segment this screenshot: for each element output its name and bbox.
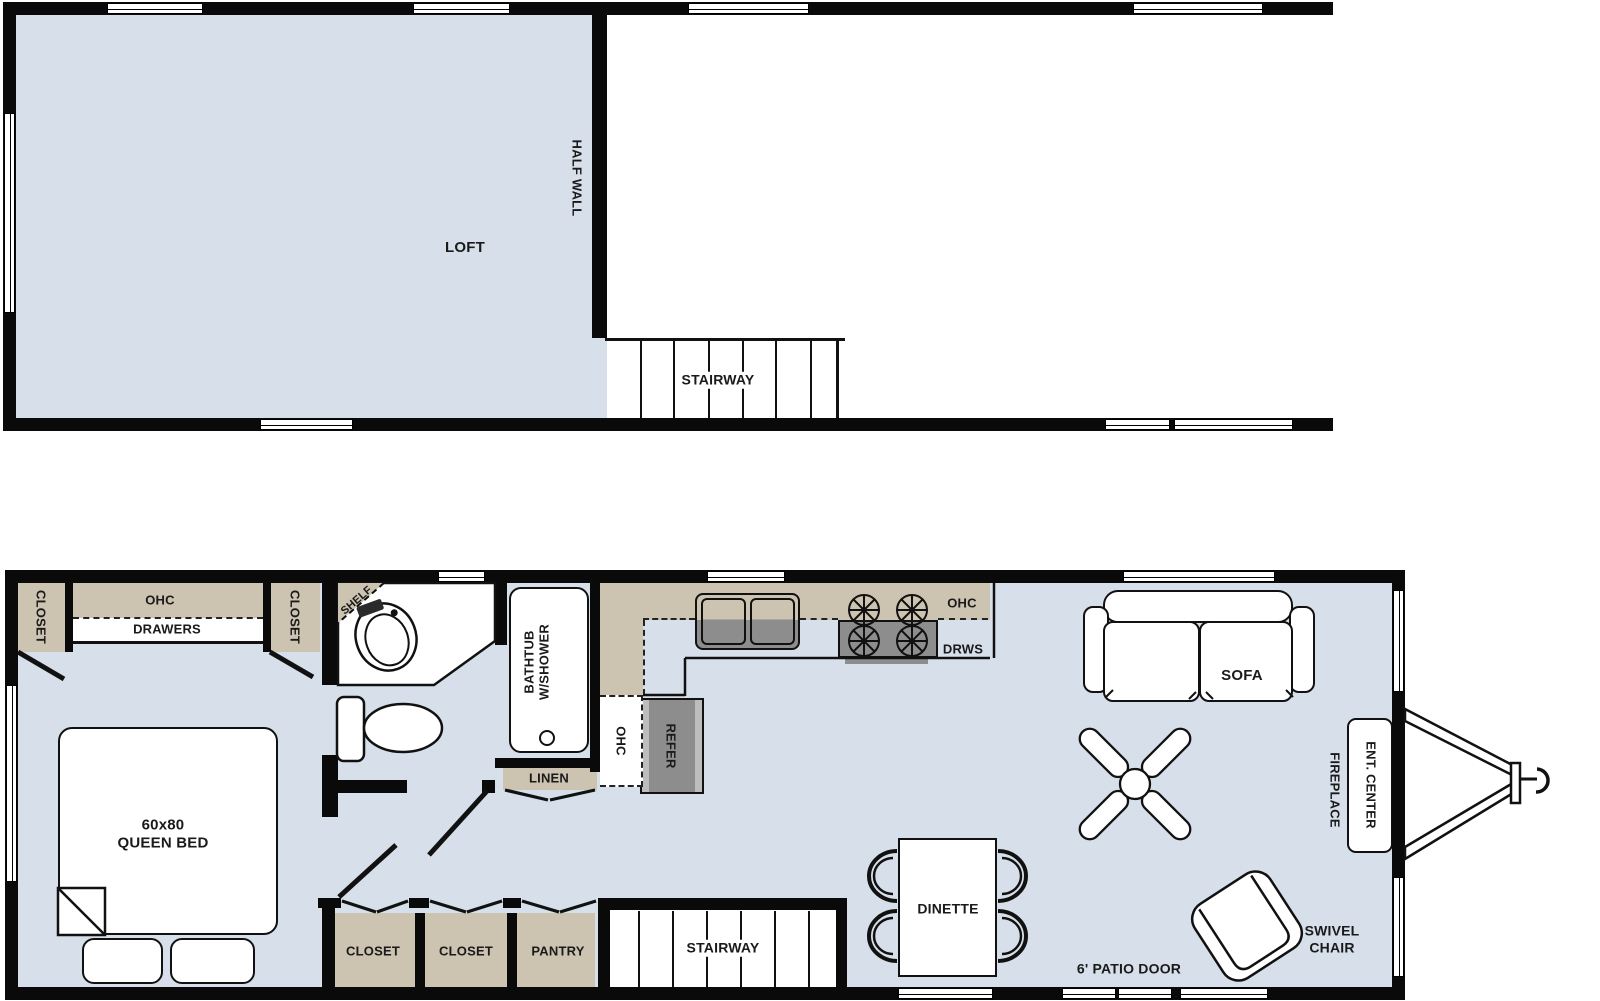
floorplan-canvas: LOFT HALF WALL STAIRWAY bbox=[0, 0, 1600, 1001]
kitchen-drws-label: DRWS bbox=[943, 641, 983, 656]
hall-closet-b-label: CLOSET bbox=[439, 943, 493, 958]
bedroom-ohc-label: OHC bbox=[145, 592, 175, 607]
patio-door-label: 6' PATIO DOOR bbox=[1077, 961, 1181, 978]
stove-burners bbox=[849, 595, 927, 656]
sofa-label: SOFA bbox=[1221, 667, 1263, 685]
bed-size-text: 60x80 bbox=[142, 816, 185, 833]
fireplace-label: FIREPLACE bbox=[1327, 752, 1342, 827]
hall-closet-a-label: CLOSET bbox=[346, 943, 400, 958]
bathtub-line1: BATHTUB bbox=[522, 630, 537, 693]
queen-bed-label: 60x80 QUEEN BED bbox=[118, 816, 209, 851]
dinette-label: DINETTE bbox=[917, 901, 978, 918]
swivel-line2: CHAIR bbox=[1309, 939, 1354, 955]
symbol-overlay bbox=[0, 0, 1600, 1001]
trailer-hitch bbox=[1405, 709, 1548, 859]
counter-edges bbox=[643, 583, 994, 696]
door-swings bbox=[18, 652, 487, 897]
bed-fold bbox=[58, 888, 105, 935]
sofa-ticks bbox=[1106, 690, 1293, 699]
swivel-chair bbox=[1185, 865, 1308, 988]
refer-label: REFER bbox=[663, 723, 678, 768]
closet-right-label: CLOSET bbox=[287, 590, 302, 644]
kitchen-ohc-label: OHC bbox=[947, 595, 977, 610]
bathtub-label: BATHTUB W/SHOWER bbox=[522, 624, 553, 700]
pantry-label: PANTRY bbox=[531, 943, 584, 958]
bathtub-line2: W/SHOWER bbox=[537, 624, 552, 700]
main-stairway-label: STAIRWAY bbox=[681, 940, 766, 957]
ceiling-fan bbox=[1076, 725, 1195, 844]
toilet-bowl bbox=[364, 704, 442, 752]
toilet-tank bbox=[337, 697, 364, 761]
kitchen-ohc-tall-label: OHC bbox=[613, 726, 628, 756]
bedroom-drawers-label: DRAWERS bbox=[133, 621, 201, 636]
linen-label: LINEN bbox=[529, 770, 569, 785]
closet-left-label: CLOSET bbox=[33, 590, 48, 644]
bed-type-text: QUEEN BED bbox=[118, 834, 209, 851]
bathtub-drain bbox=[540, 731, 554, 745]
swivel-chair-label: SWIVEL CHAIR bbox=[1305, 922, 1360, 955]
ent-center-label: ENT. CENTER bbox=[1363, 741, 1378, 828]
swivel-line1: SWIVEL bbox=[1305, 922, 1360, 938]
